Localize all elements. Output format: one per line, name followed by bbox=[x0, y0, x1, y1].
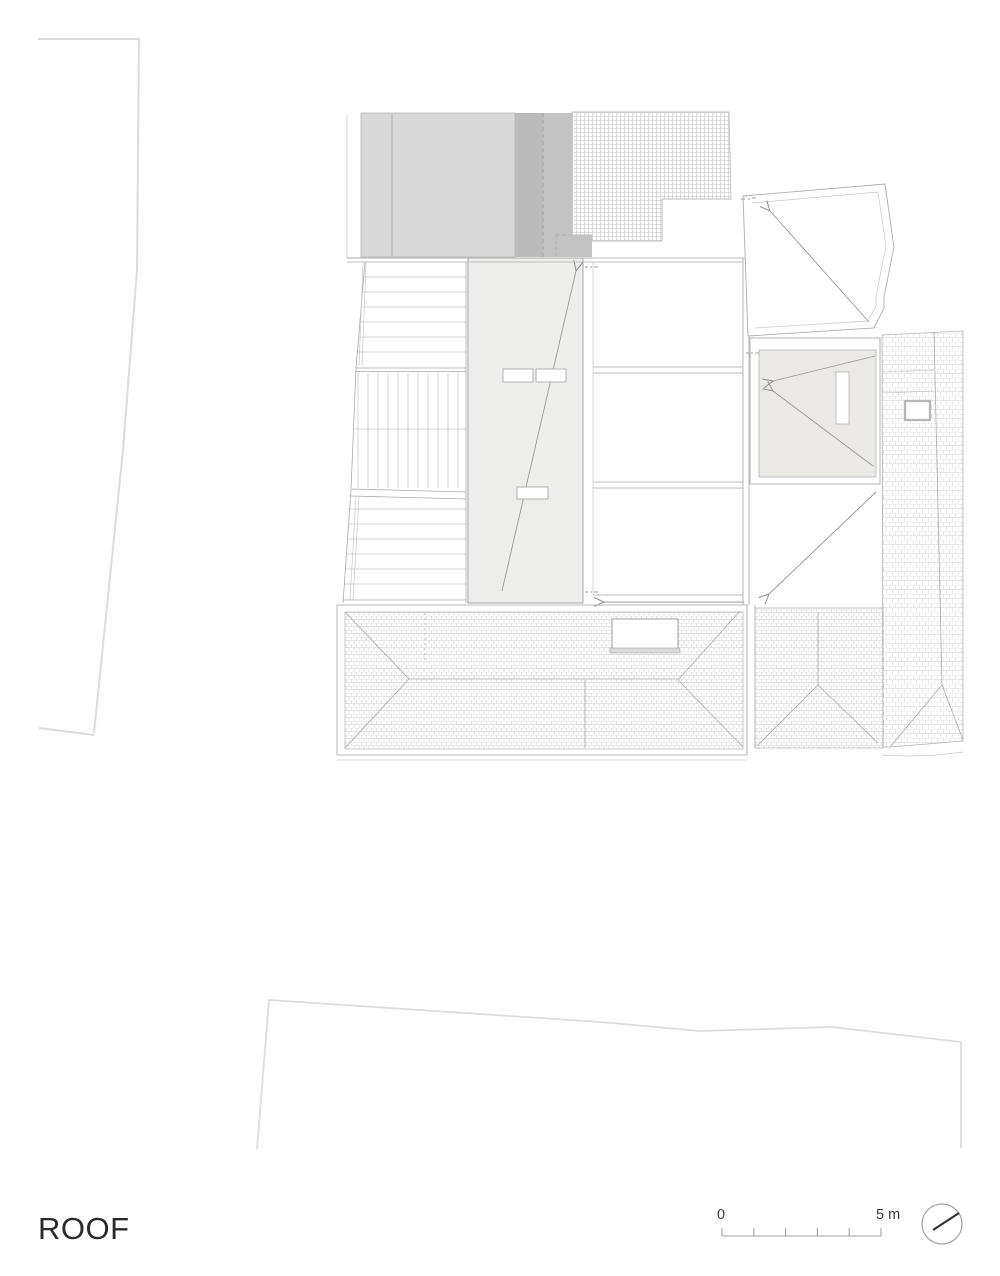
hip-roof-tiles bbox=[345, 612, 743, 749]
existing-building-block bbox=[347, 113, 592, 258]
flat-roof-joint-2 bbox=[593, 482, 743, 488]
terrace-rooflight-slot bbox=[836, 372, 849, 424]
strip-body bbox=[468, 258, 583, 603]
section-c-side-strip bbox=[350, 497, 359, 600]
building-gray-light bbox=[361, 113, 515, 257]
page-title: ROOF bbox=[38, 1211, 130, 1246]
roof-divider bbox=[747, 605, 755, 755]
adjacent-roof-base-contour bbox=[882, 752, 963, 756]
neighbor-roof-hatch bbox=[572, 112, 731, 241]
roof-skylight bbox=[612, 619, 678, 649]
scale-bar-line bbox=[722, 1228, 881, 1236]
section-divider-b bbox=[351, 489, 466, 499]
dimension-ticks bbox=[585, 198, 759, 592]
lower-right-flat-roof bbox=[769, 492, 876, 594]
roof-skylight-sill bbox=[610, 648, 680, 653]
adjacent-roof-outline bbox=[882, 331, 963, 747]
skylight bbox=[536, 369, 566, 382]
flat-roof-joint-1 bbox=[593, 367, 743, 373]
secondary-roof-tiles bbox=[755, 608, 883, 748]
adjacent-building-roof bbox=[882, 331, 963, 756]
left-outer-edge bbox=[343, 262, 365, 603]
main-hip-roof bbox=[337, 605, 747, 760]
scale-max-label: 5 m bbox=[876, 1207, 900, 1223]
slope-arrow-lower-right bbox=[769, 492, 876, 594]
upper-right-roof bbox=[743, 184, 894, 336]
neighbor-roof-outline bbox=[572, 112, 731, 241]
site-boundary-upper-left bbox=[38, 39, 139, 735]
roof-plan-drawing: ROOF 0 5 m bbox=[0, 0, 1000, 1276]
scale-zero-label: 0 bbox=[717, 1207, 725, 1223]
roof-terrace-square bbox=[750, 338, 880, 484]
scale-bar: 0 5 m bbox=[717, 1207, 900, 1236]
section-a-treads bbox=[357, 277, 466, 352]
section-divider-a bbox=[355, 368, 466, 372]
left-stair-sections bbox=[343, 262, 466, 603]
building-gray-dark bbox=[515, 113, 543, 257]
building-gray-step bbox=[543, 235, 592, 257]
terrace-deck bbox=[759, 350, 876, 477]
central-rooflight-strip bbox=[468, 258, 593, 603]
upper-right-roof-outline bbox=[743, 184, 894, 336]
skylight bbox=[503, 369, 533, 382]
section-a-side-strip bbox=[359, 263, 366, 366]
section-b-boards bbox=[358, 373, 458, 488]
north-indicator bbox=[922, 1204, 962, 1244]
chimney bbox=[905, 401, 930, 420]
title-block: ROOF bbox=[38, 1211, 130, 1246]
section-c-treads bbox=[344, 509, 466, 584]
secondary-hip-roof bbox=[747, 605, 883, 755]
skylight bbox=[517, 487, 548, 499]
north-needle bbox=[933, 1213, 959, 1230]
site-boundary-lower bbox=[257, 1000, 961, 1149]
